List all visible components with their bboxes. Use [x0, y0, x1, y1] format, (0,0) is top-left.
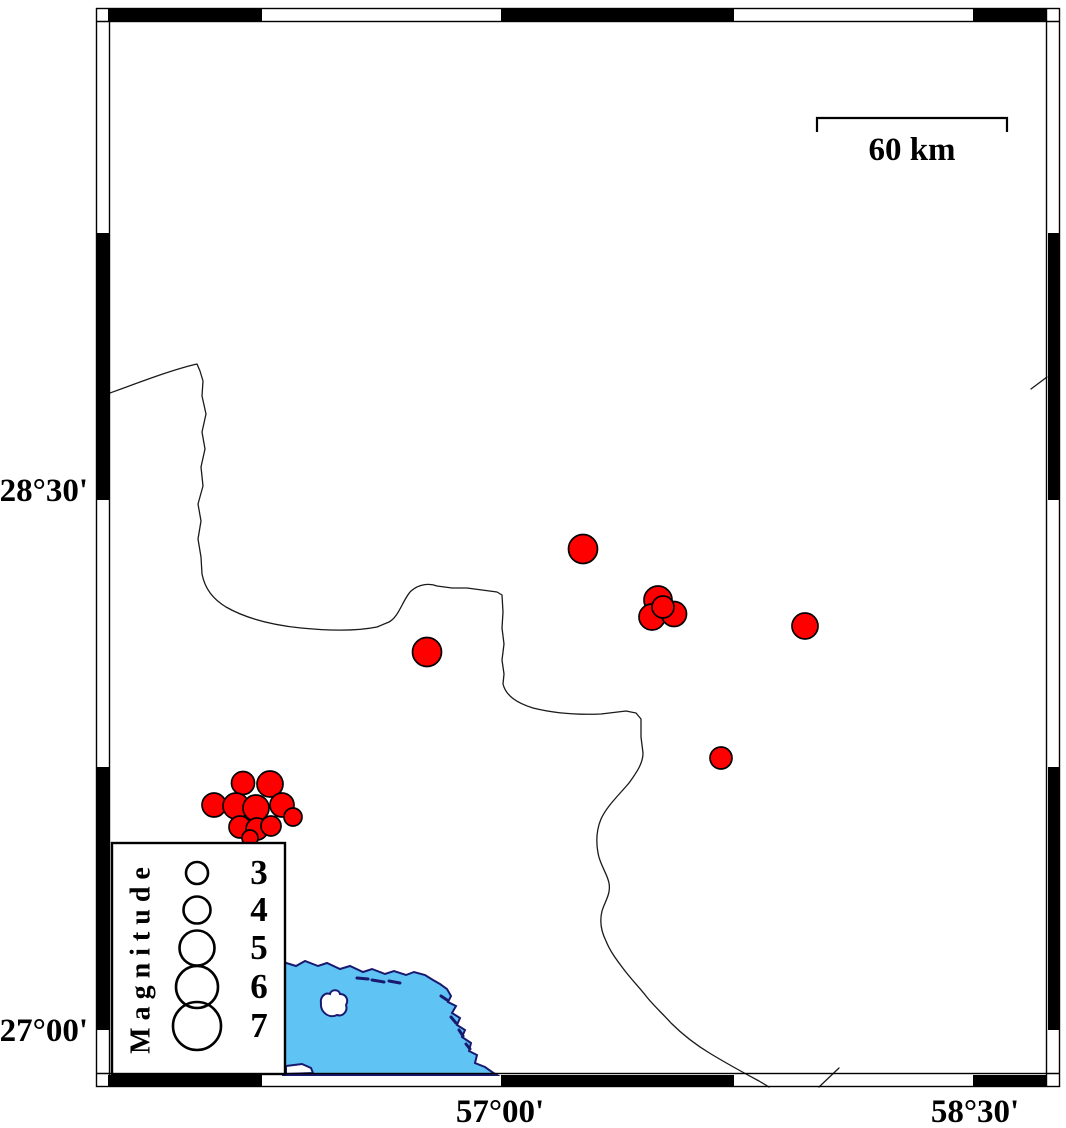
map-canvas: Magnitude 3 4 5 6 7 60 km 28°30' 27°00' …: [0, 0, 1066, 1128]
legend-title: Magnitude: [126, 860, 157, 1054]
earthquake-marker: [792, 613, 818, 639]
boundary-line-southeast: [819, 1068, 839, 1087]
frame-ticks-left: [97, 233, 109, 1030]
sea-polygon: [283, 961, 497, 1075]
axis-label-lat-27-00: 27°00': [0, 1013, 88, 1049]
earthquake-markers: [202, 535, 818, 847]
island: [321, 990, 347, 1016]
seismicity-map: Magnitude 3 4 5 6 7 60 km 28°30' 27°00' …: [0, 0, 1066, 1128]
scale-bar-bracket: [817, 118, 1007, 132]
axis-label-lat-28-30: 28°30': [0, 473, 88, 509]
axis-label-lon-58-30: 58°30': [931, 1094, 1019, 1128]
legend-label-mag5: 5: [250, 928, 268, 967]
boundary-line-east: [1031, 377, 1047, 389]
earthquake-marker: [710, 747, 732, 769]
legend-label-mag6: 6: [250, 967, 268, 1006]
legend-labels: 3 4 5 6 7: [250, 853, 268, 1045]
earthquake-marker: [261, 816, 281, 836]
earthquake-marker: [569, 535, 598, 564]
frame-ticks-right: [1048, 233, 1060, 1030]
legend-label-mag4: 4: [250, 890, 268, 929]
earthquake-marker: [284, 808, 302, 826]
frame-ticks-top: [108, 9, 1047, 21]
earthquake-marker: [232, 772, 255, 795]
frame-ticks-bottom: [108, 1075, 1047, 1087]
earthquake-marker: [413, 638, 442, 667]
magnitude-legend: Magnitude 3 4 5 6 7: [112, 843, 285, 1074]
legend-label-mag7: 7: [250, 1006, 268, 1045]
scale-bar: 60 km: [817, 118, 1007, 168]
legend-label-mag3: 3: [250, 853, 268, 892]
scale-bar-label: 60 km: [868, 132, 955, 168]
earthquake-marker: [652, 596, 674, 618]
axis-label-lon-57-00: 57°00': [456, 1094, 544, 1128]
